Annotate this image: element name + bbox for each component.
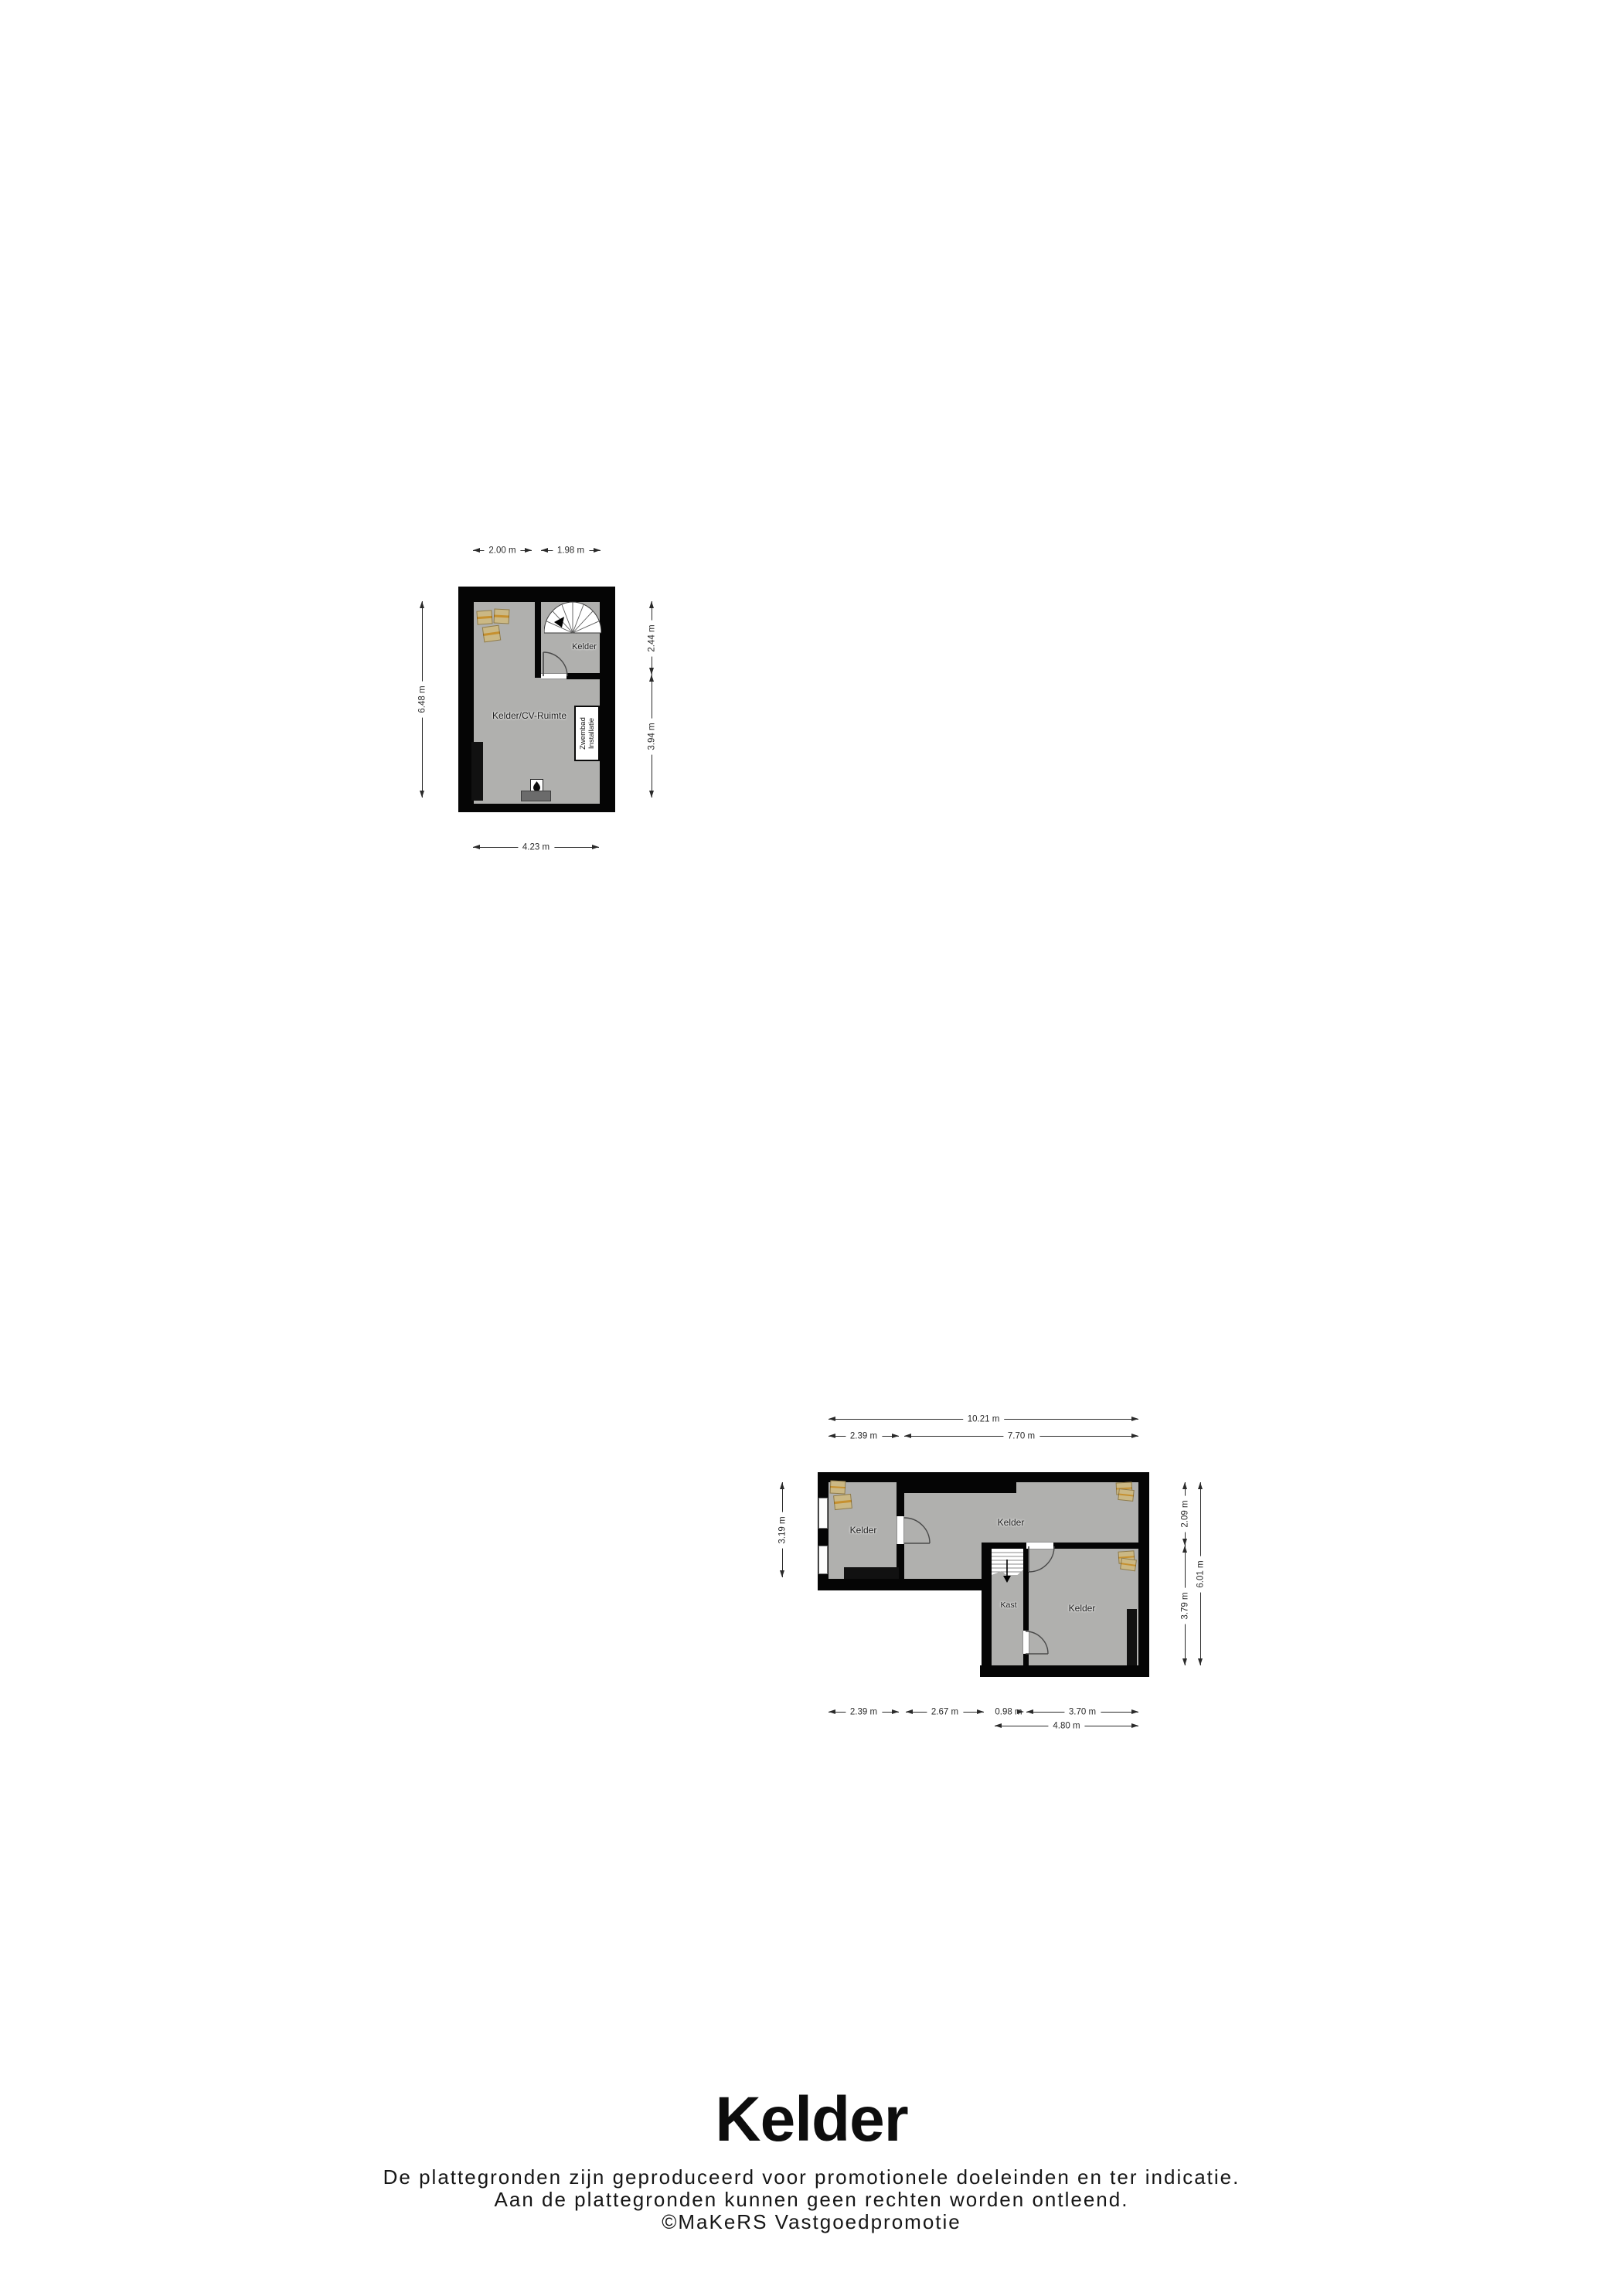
page-title: Kelder [0, 2087, 1623, 2153]
storage-box [833, 1494, 852, 1510]
storage-box [482, 625, 502, 643]
plan2-wall-separator [982, 1543, 1138, 1549]
plan1-chimney-breast [471, 742, 483, 801]
plan1-interior-wall-horizontal [567, 673, 600, 679]
room-label-kelder-right: Kelder [1043, 1603, 1121, 1614]
plan2-wall-bottom-left-section [818, 1579, 992, 1590]
dim-plan2-top-left: 2.39 m [829, 1436, 899, 1437]
plan1-door-swing [541, 650, 570, 679]
room-label-kelder-stairs: Kelder [546, 642, 623, 651]
plan2-chimney-right-kelder [1127, 1609, 1137, 1665]
plan2-wall-bottom-right-section [980, 1665, 1149, 1677]
dim-plan1-left: 6.48 m [422, 601, 423, 798]
dim-plan2-bottom-3: 0.98 m [993, 1712, 1024, 1713]
plan1-interior-wall-vertical [535, 602, 541, 678]
storage-box [494, 608, 510, 624]
dim-plan2-bottom-4: 3.70 m [1026, 1712, 1138, 1713]
plan2-wall-right [1138, 1472, 1149, 1677]
dim-plan2-right-total: 6.01 m [1200, 1482, 1201, 1665]
disclaimer-line-1: De plattegronden zijn geproduceerd voor … [0, 2166, 1623, 2189]
floorplan-page: { "footer": { "title": "Kelder", "line1"… [0, 0, 1623, 2296]
window [818, 1498, 828, 1529]
storage-box [1118, 1488, 1134, 1502]
window [818, 1546, 828, 1574]
dim-plan2-bottom-total: 4.80 m [995, 1726, 1138, 1726]
room-label-kelder-left: Kelder [825, 1525, 902, 1536]
dim-plan2-top-right: 7.70 m [904, 1436, 1138, 1437]
dim-plan1-right-2: 3.94 m [652, 675, 652, 798]
copyright-line: ©MaKeRS Vastgoedpromotie [0, 2211, 1623, 2233]
dim-plan2-right-bottom: 3.79 m [1185, 1546, 1186, 1665]
plan1-entry-step [521, 791, 551, 801]
room-label-kast: Kast [986, 1600, 1031, 1610]
plan1-spiral-stairs [544, 601, 601, 634]
dim-plan1-top-2: 1.98 m [541, 550, 601, 551]
dim-plan1-bottom: 4.23 m [473, 847, 599, 848]
room-label-kelder-middle: Kelder [972, 1517, 1050, 1528]
plan2-wall-left-lower-section [982, 1543, 992, 1677]
zwembad-installatie-label: ZwembadInstallatie [579, 717, 596, 750]
room-label-kelder-cv-ruimte: Kelder/CV-Ruimte [471, 710, 587, 721]
dim-plan2-bottom-2: 2.67 m [906, 1712, 984, 1713]
dim-plan2-top-total: 10.21 m [829, 1419, 1138, 1420]
disclaimer-line-2: Aan de plattegronden kunnen geen rechten… [0, 2189, 1623, 2211]
plan2-wall-top [818, 1472, 1149, 1482]
dim-plan2-right-top: 2.09 m [1185, 1482, 1186, 1546]
plan2-door-swing-kast [1024, 1631, 1050, 1657]
dim-plan2-bottom-1: 2.39 m [829, 1712, 899, 1713]
plan2-stairs-down [992, 1549, 1023, 1584]
dim-plan1-top-1: 2.00 m [473, 550, 532, 551]
plan2-wall-top-bar [904, 1482, 1016, 1493]
plan2-door-swing-left-kelder [903, 1516, 932, 1546]
storage-box [476, 610, 492, 624]
plan2-bench-left-kelder [844, 1567, 899, 1579]
storage-box [1120, 1558, 1137, 1572]
storage-box [830, 1480, 846, 1494]
dim-plan2-left: 3.19 m [782, 1482, 783, 1577]
plan2-floor-kelder-middle-lower [904, 1543, 982, 1579]
dim-plan1-right-1: 2.44 m [652, 601, 652, 675]
plan2-door-swing-right-kelder [1027, 1545, 1056, 1574]
